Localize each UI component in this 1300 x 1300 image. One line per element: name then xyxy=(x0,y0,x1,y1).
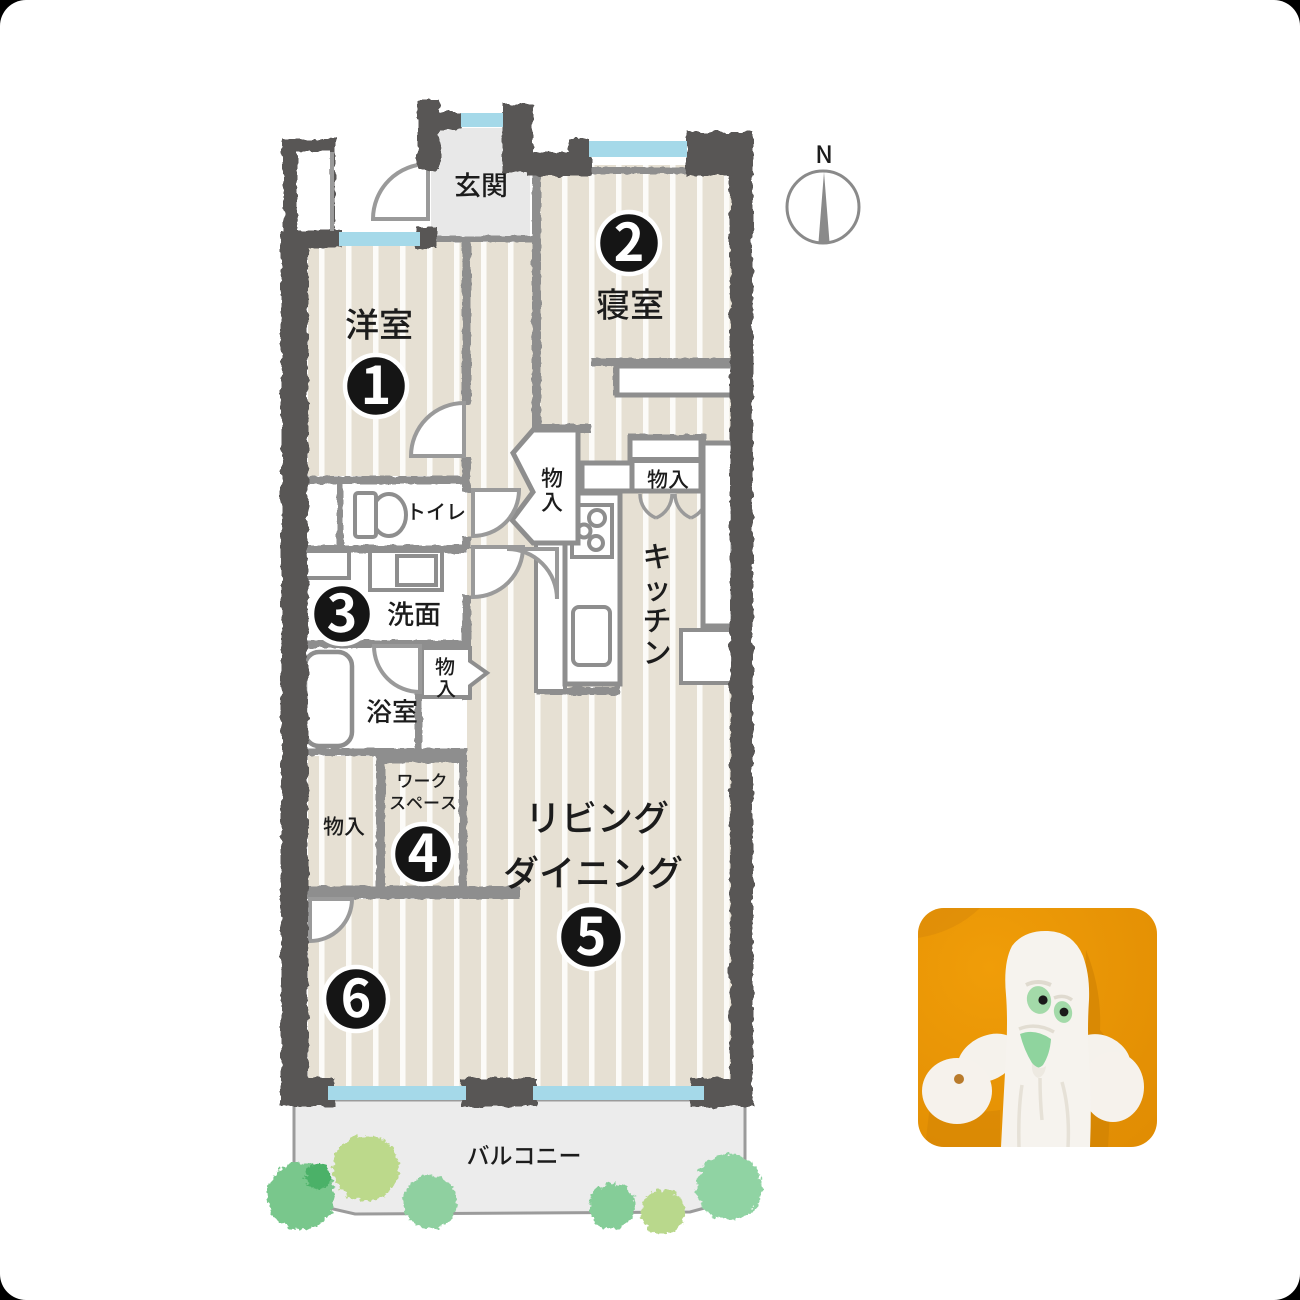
svg-text:5: 5 xyxy=(576,895,607,970)
svg-text:2: 2 xyxy=(614,201,645,276)
svg-text:洗面: 洗面 xyxy=(387,593,441,632)
svg-text:物入: 物入 xyxy=(647,464,689,494)
svg-text:ン: ン xyxy=(642,630,671,672)
svg-text:寝室: 寝室 xyxy=(596,278,664,327)
svg-text:4: 4 xyxy=(408,812,439,887)
svg-text:ダイニング: ダイニング xyxy=(503,845,683,897)
svg-text:スペース: スペース xyxy=(389,789,457,814)
svg-text:浴室: 浴室 xyxy=(366,692,418,729)
svg-text:入: 入 xyxy=(436,673,456,702)
svg-text:トイレ: トイレ xyxy=(406,496,466,525)
svg-text:6: 6 xyxy=(341,957,372,1032)
svg-text:リビング: リビング xyxy=(525,790,669,842)
svg-text:バルコニー: バルコニー xyxy=(467,1137,582,1171)
svg-text:玄関: 玄関 xyxy=(454,164,508,203)
svg-text:N: N xyxy=(815,135,833,170)
svg-text:3: 3 xyxy=(327,572,358,647)
svg-text:洋室: 洋室 xyxy=(345,298,413,347)
svg-text:入: 入 xyxy=(541,485,563,517)
svg-text:物入: 物入 xyxy=(323,811,365,841)
svg-text:1: 1 xyxy=(361,344,392,419)
